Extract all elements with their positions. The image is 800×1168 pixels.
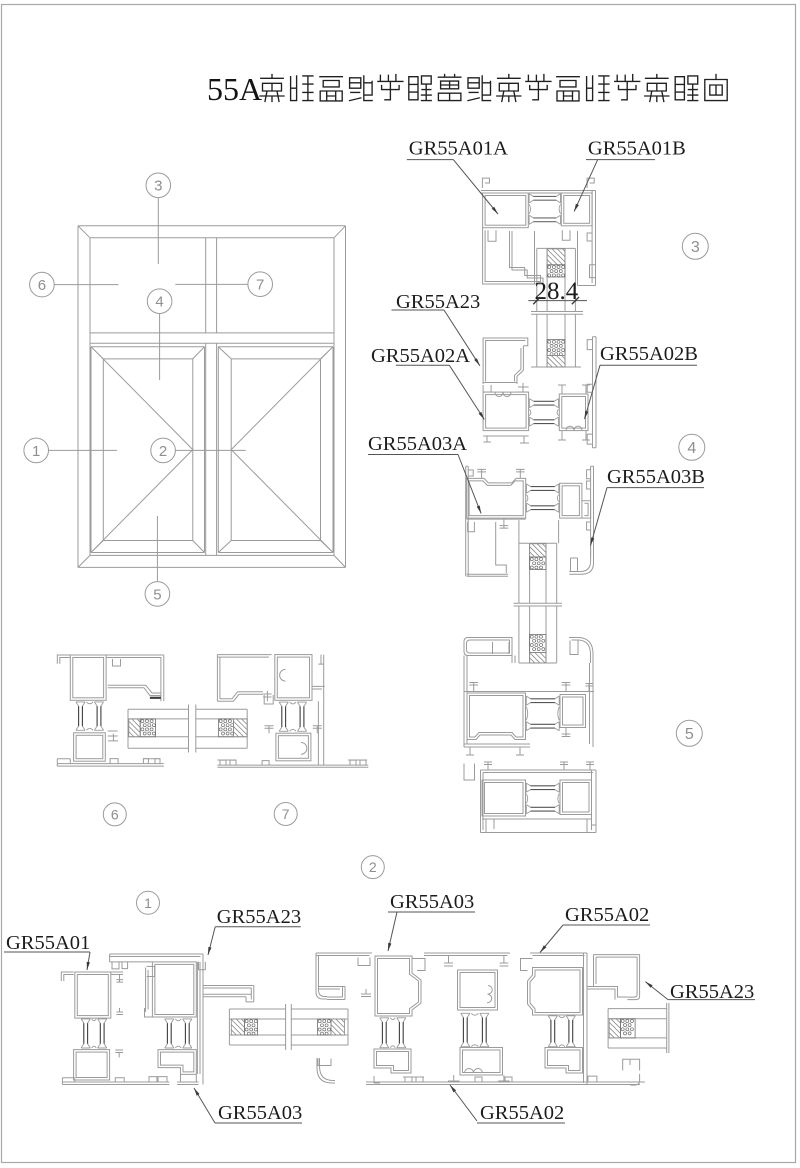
svg-text:1: 1: [144, 895, 152, 911]
svg-text:GR55A03: GR55A03: [390, 891, 474, 913]
svg-text:3: 3: [154, 178, 162, 195]
svg-text:GR55A03A: GR55A03A: [368, 433, 467, 455]
svg-text:3: 3: [691, 239, 700, 256]
svg-text:2: 2: [159, 443, 167, 460]
svg-text:GR55A23: GR55A23: [217, 906, 301, 928]
svg-text:5: 5: [685, 726, 694, 743]
svg-text:GR55A01B: GR55A01B: [588, 138, 686, 160]
svg-text:4: 4: [155, 294, 163, 311]
svg-text:6: 6: [38, 277, 46, 294]
svg-text:6: 6: [111, 806, 119, 822]
svg-text:GR55A02B: GR55A02B: [600, 343, 698, 365]
svg-text:4: 4: [687, 440, 696, 457]
svg-text:1: 1: [32, 443, 40, 460]
svg-text:7: 7: [256, 277, 264, 294]
svg-text:GR55A01: GR55A01: [6, 932, 90, 954]
svg-text:55A: 55A: [207, 71, 262, 107]
svg-text:5: 5: [153, 586, 161, 603]
svg-text:GR55A03B: GR55A03B: [607, 466, 705, 488]
svg-text:GR55A01A: GR55A01A: [409, 138, 508, 160]
svg-text:7: 7: [282, 806, 290, 822]
svg-text:GR55A02: GR55A02: [565, 904, 649, 926]
svg-text:GR55A03: GR55A03: [218, 1102, 302, 1124]
svg-text:GR55A02: GR55A02: [480, 1102, 564, 1124]
svg-text:2: 2: [369, 859, 377, 875]
svg-text:GR55A02A: GR55A02A: [371, 345, 470, 367]
